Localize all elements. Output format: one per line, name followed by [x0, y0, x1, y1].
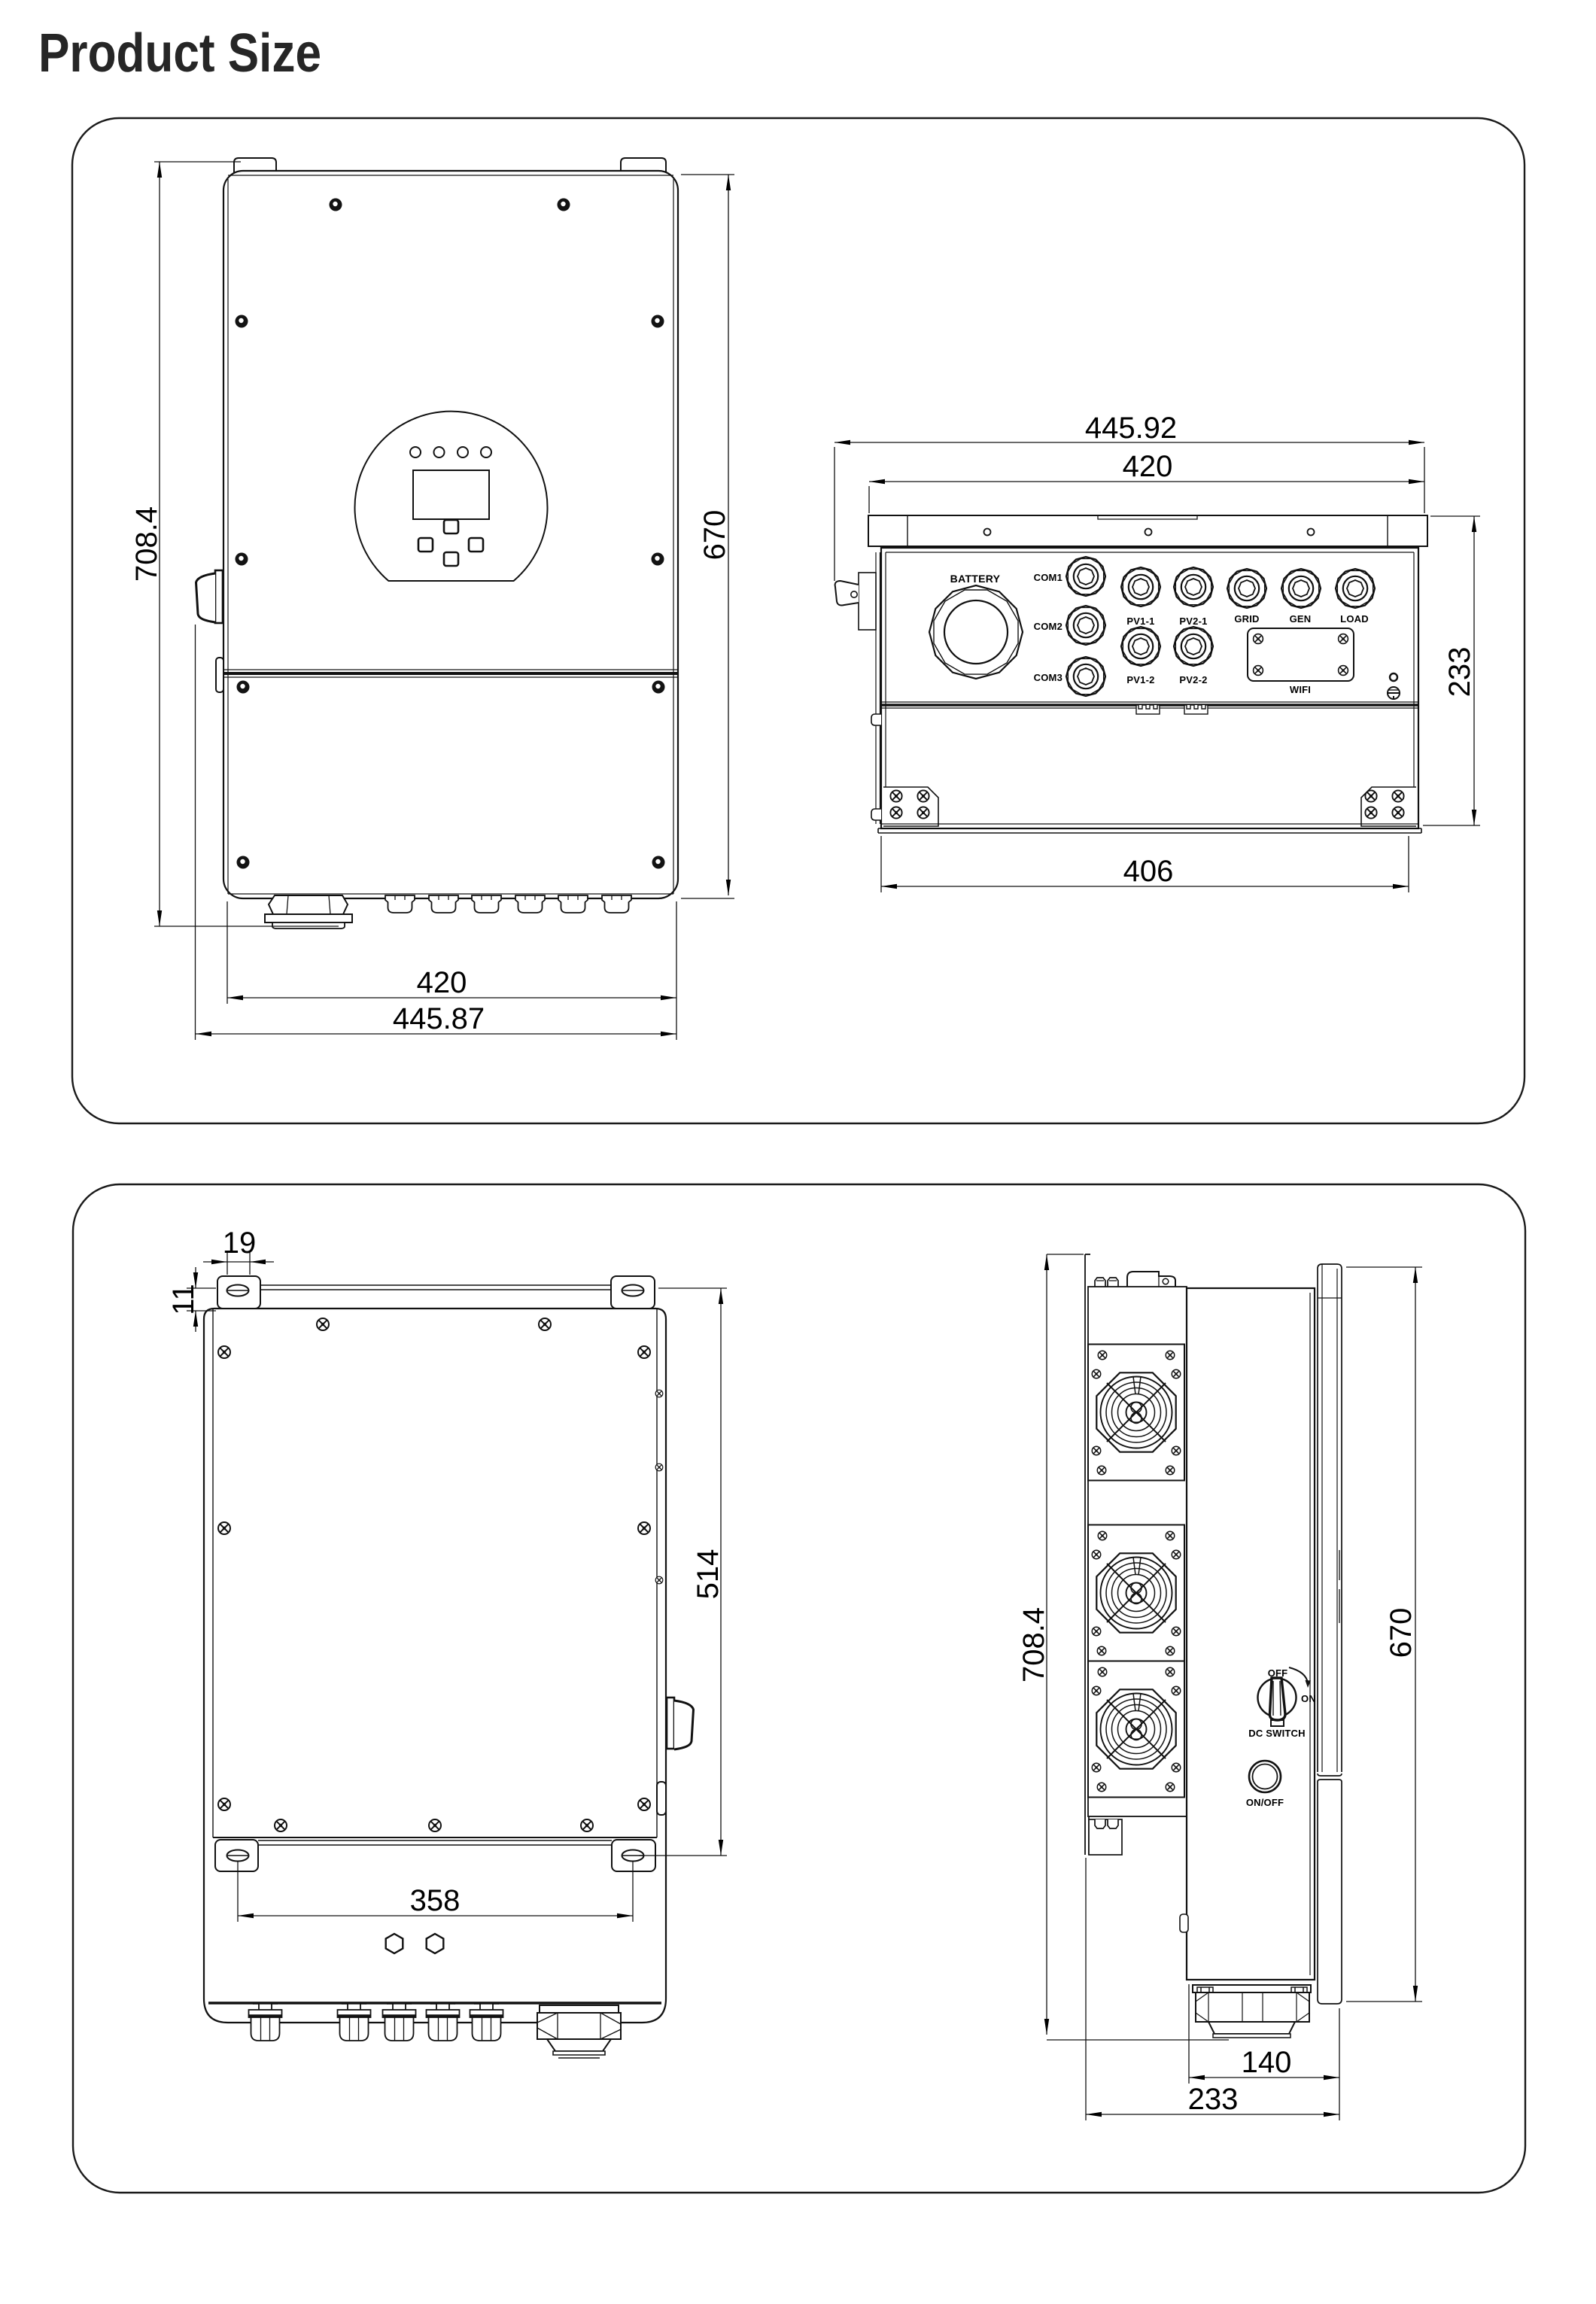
svg-text:358: 358: [410, 1884, 461, 1917]
svg-text:PV2-1: PV2-1: [1179, 616, 1207, 627]
svg-text:445.92: 445.92: [1085, 412, 1177, 445]
svg-text:670: 670: [1385, 1608, 1418, 1658]
svg-text:708.4: 708.4: [130, 506, 163, 582]
svg-text:OFF: OFF: [1268, 1667, 1288, 1679]
svg-text:19: 19: [223, 1226, 257, 1260]
svg-text:445.87: 445.87: [393, 1002, 485, 1035]
svg-text:GRID: GRID: [1234, 613, 1259, 625]
svg-text:708.4: 708.4: [1017, 1607, 1050, 1682]
svg-text:COM3: COM3: [1034, 672, 1062, 683]
svg-text:LOAD: LOAD: [1340, 613, 1369, 625]
svg-text:BATTERY: BATTERY: [950, 573, 1001, 585]
svg-text:406: 406: [1123, 855, 1174, 888]
svg-text:670: 670: [698, 510, 731, 561]
svg-text:PV1-2: PV1-2: [1126, 674, 1154, 685]
svg-text:11: 11: [167, 1284, 200, 1315]
svg-text:COM1: COM1: [1034, 572, 1062, 583]
svg-text:PV1-1: PV1-1: [1126, 616, 1154, 627]
svg-text:420: 420: [417, 966, 467, 999]
svg-text:514: 514: [692, 1549, 725, 1600]
svg-text:PV2-2: PV2-2: [1179, 674, 1207, 685]
svg-text:140: 140: [1242, 2046, 1292, 2079]
svg-text:WIFI: WIFI: [1290, 684, 1311, 695]
svg-text:Product Size: Product Size: [38, 23, 321, 84]
svg-text:ON/OFF: ON/OFF: [1246, 1797, 1284, 1808]
svg-text:233: 233: [1188, 2083, 1239, 2116]
svg-text:420: 420: [1123, 450, 1173, 483]
svg-text:ON: ON: [1301, 1693, 1316, 1704]
svg-text:GEN: GEN: [1290, 613, 1312, 625]
svg-text:COM2: COM2: [1034, 621, 1062, 632]
svg-text:DC SWITCH: DC SWITCH: [1248, 1728, 1305, 1739]
svg-text:233: 233: [1443, 647, 1476, 698]
